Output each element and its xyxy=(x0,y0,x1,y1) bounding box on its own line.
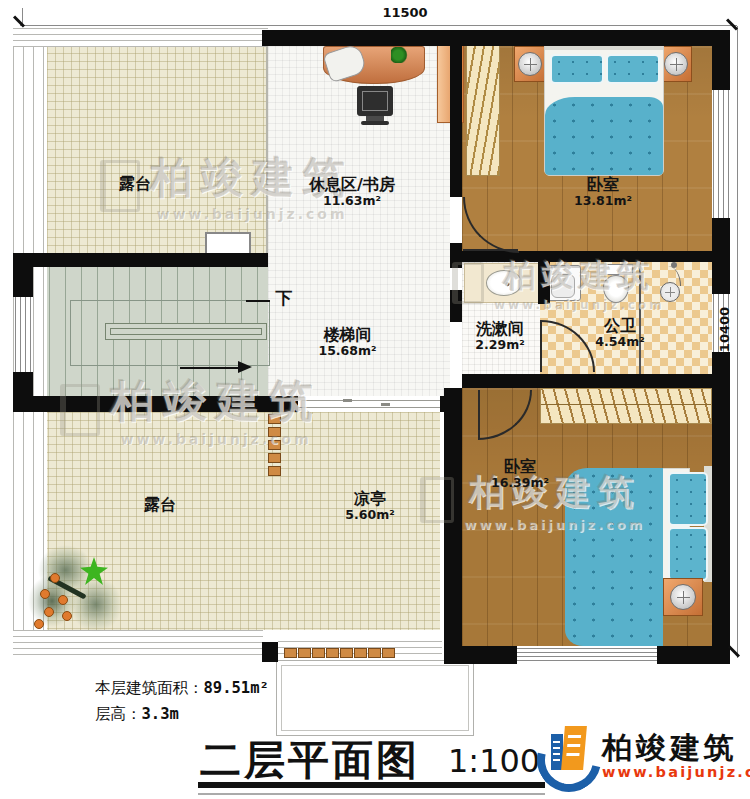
stairs-handrail xyxy=(105,323,267,340)
baluster xyxy=(326,648,339,658)
room-label-washroom: 洗漱间 2.29m² xyxy=(455,320,545,353)
room-label-pavilion: 凉亭 5.60m² xyxy=(330,490,410,523)
baluster xyxy=(268,453,281,463)
plan-title: 二层平面图 xyxy=(200,733,420,788)
baluster xyxy=(354,648,367,658)
sliding-door-terrace xyxy=(298,400,440,408)
room-name: 楼梯间 xyxy=(300,326,395,344)
wall-pier-railing xyxy=(262,642,278,662)
washing-machine-drum xyxy=(551,274,575,298)
dimension-right-line xyxy=(737,26,738,658)
room-label-terrace-bottom: 露台 xyxy=(120,496,200,514)
pillow xyxy=(668,527,708,581)
baluster xyxy=(368,648,381,658)
shower-icon xyxy=(660,282,680,302)
wall-right-middle xyxy=(712,218,730,294)
wall-left-stair-upper xyxy=(13,253,33,297)
room-area: 15.68m² xyxy=(300,344,395,358)
floor-height-label: 层高： xyxy=(95,705,142,723)
baluster xyxy=(268,414,281,424)
room-name: 露台 xyxy=(95,175,175,193)
pillow xyxy=(550,54,604,84)
dimension-top: 11500 xyxy=(370,5,440,20)
room-name: 卧室 xyxy=(553,176,653,194)
washing-machine-icon xyxy=(545,265,581,301)
stairs-direction-line xyxy=(180,367,240,369)
shower-head-dot xyxy=(671,262,677,268)
room-name: 卧室 xyxy=(470,458,570,476)
dimension-tick-top-left xyxy=(13,15,25,27)
plant-berry xyxy=(44,607,54,617)
dimension-top-line xyxy=(20,25,737,26)
room-area: 16.39m² xyxy=(470,476,570,490)
room-area: 11.63m² xyxy=(292,194,412,208)
pillow xyxy=(668,472,708,526)
room-area: 2.29m² xyxy=(455,338,545,352)
sliding-door-handle xyxy=(343,399,352,402)
floor-plan-canvas: 11500 10400 xyxy=(0,0,750,799)
wall-bedroom2-bottom-left xyxy=(462,646,517,664)
lamp-icon xyxy=(670,584,696,610)
bed-blanket xyxy=(545,97,663,175)
room-name: 露台 xyxy=(120,496,200,514)
computer-monitor-base xyxy=(361,121,389,125)
plant-berry xyxy=(40,589,50,599)
floor-area-note: 本层建筑面积：89.51m² xyxy=(95,678,269,699)
desk-plant-icon xyxy=(391,47,409,63)
dimension-right: 10400 xyxy=(717,300,732,360)
wall-top xyxy=(262,30,712,46)
room-area: 4.54m² xyxy=(575,335,665,349)
title-underline-thick xyxy=(198,782,545,788)
wall-terrace-stair xyxy=(13,253,268,267)
wardrobe-bedroom2 xyxy=(540,388,712,424)
railing-top xyxy=(13,28,268,47)
nightstand-bedroom1-left xyxy=(514,46,546,82)
balcony-outline xyxy=(276,660,474,736)
door-bedroom2-leaf xyxy=(478,390,480,438)
floor-area-label: 本层建筑面积： xyxy=(95,679,204,697)
baluster xyxy=(340,648,353,658)
stairs-arrow-icon xyxy=(238,361,252,373)
wall-bedroom1-bathroom xyxy=(462,251,712,262)
logo-building-orange xyxy=(561,726,587,770)
lamp-icon xyxy=(518,52,542,76)
window-bedroom1 xyxy=(713,90,729,218)
room-name: 洗漱间 xyxy=(455,320,545,338)
floor-height-note: 层高：3.3m xyxy=(95,704,179,725)
computer-monitor-icon xyxy=(357,86,393,116)
nightstand-bedroom1-right xyxy=(660,46,692,82)
sliding-door-handle xyxy=(381,403,390,406)
floor-area-value: 89.51m² xyxy=(204,679,269,697)
baluster xyxy=(284,648,297,658)
baluster xyxy=(382,648,395,658)
wall-study-bedroom1 xyxy=(450,30,462,197)
plant-berry xyxy=(50,573,60,583)
wall-bedroom2-left xyxy=(444,388,462,664)
wall-bedroom2-bottom-right xyxy=(657,646,712,664)
brand-name: 柏竣建筑 xyxy=(602,728,738,769)
plant-foliage xyxy=(70,577,122,632)
plan-scale: 1:100 xyxy=(448,742,540,780)
room-label-terrace-top: 露台 xyxy=(95,175,175,193)
baluster xyxy=(268,427,281,437)
plant-berry xyxy=(62,611,72,621)
baluster xyxy=(268,466,281,476)
window-bedroom2 xyxy=(517,648,657,662)
wall-pier-washroom xyxy=(450,290,462,322)
nightstand-bedroom2 xyxy=(663,578,703,616)
brand-logo-icon xyxy=(537,722,597,786)
bed-bedroom1 xyxy=(544,44,664,176)
title-underline-thin xyxy=(198,793,545,795)
terrace-plant xyxy=(28,545,123,640)
room-label-stairwell: 楼梯间 15.68m² xyxy=(300,326,395,359)
stairs-down-label: 下 xyxy=(270,289,298,309)
sink-icon xyxy=(486,270,522,296)
bed-blanket xyxy=(565,468,663,646)
window-stairwell xyxy=(15,297,31,372)
brand-site: www.baijunjz.com xyxy=(602,764,750,780)
wardrobe-bedroom1 xyxy=(466,44,500,176)
baluster xyxy=(268,440,281,450)
room-area: 13.81m² xyxy=(553,194,653,208)
terrace-study-divider xyxy=(266,46,268,253)
wall-pier-washroom-bathroom xyxy=(538,262,550,304)
wall-stair-terrace2 xyxy=(13,396,298,412)
lamp-icon xyxy=(664,52,688,76)
plant-berry xyxy=(58,595,68,605)
stairs-down-leader-line xyxy=(246,300,270,302)
baluster xyxy=(298,648,311,658)
room-label-bedroom2: 卧室 16.39m² xyxy=(470,458,570,491)
door-bedroom1-leaf xyxy=(463,249,518,251)
room-area: 5.60m² xyxy=(330,508,410,522)
room-label-bathroom: 公卫 4.54m² xyxy=(575,317,665,350)
baluster xyxy=(312,648,325,658)
toilet-tank xyxy=(599,264,633,275)
room-label-bedroom1: 卧室 13.81m² xyxy=(553,176,653,209)
floor-terrace-top xyxy=(47,45,267,253)
pillow xyxy=(606,54,660,84)
room-label-study: 休息区/书房 11.63m² xyxy=(292,176,412,209)
floor-height-value: 3.3m xyxy=(142,705,179,723)
wall-right-lower xyxy=(712,352,730,664)
room-name: 公卫 xyxy=(575,317,665,335)
wall-bedroom2-top xyxy=(462,374,712,388)
wall-right-upper xyxy=(712,30,730,90)
stairs-down-text: 下 xyxy=(270,289,298,309)
room-name: 休息区/书房 xyxy=(292,176,412,194)
plant-berry xyxy=(34,619,44,629)
room-name: 凉亭 xyxy=(330,490,410,508)
wall-pier-bedroom1-door xyxy=(450,243,462,268)
